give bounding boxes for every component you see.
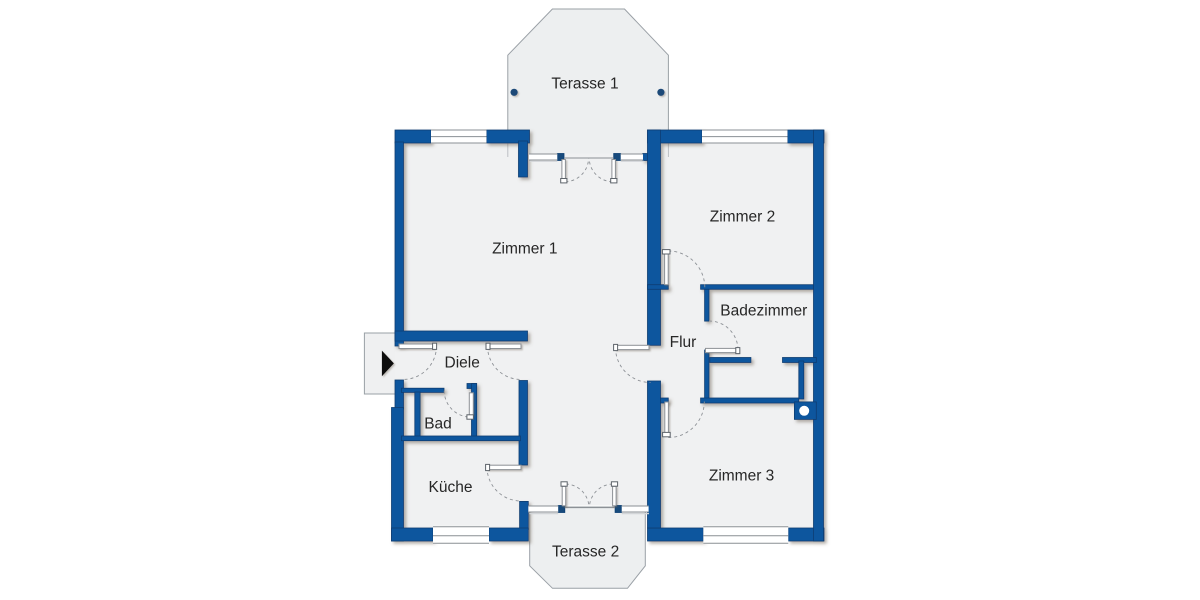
svg-text:Zimmer 2: Zimmer 2 (710, 209, 775, 226)
svg-text:Zimmer 3: Zimmer 3 (709, 468, 774, 485)
svg-text:Terasse 2: Terasse 2 (552, 544, 619, 561)
svg-text:Terasse 1: Terasse 1 (551, 76, 618, 93)
svg-text:Badezimmer: Badezimmer (720, 302, 807, 319)
svg-text:Zimmer 1: Zimmer 1 (492, 241, 557, 258)
svg-text:Küche: Küche (429, 479, 473, 496)
svg-text:Bad: Bad (424, 416, 452, 433)
svg-text:Diele: Diele (445, 355, 480, 372)
svg-text:Flur: Flur (670, 334, 697, 351)
